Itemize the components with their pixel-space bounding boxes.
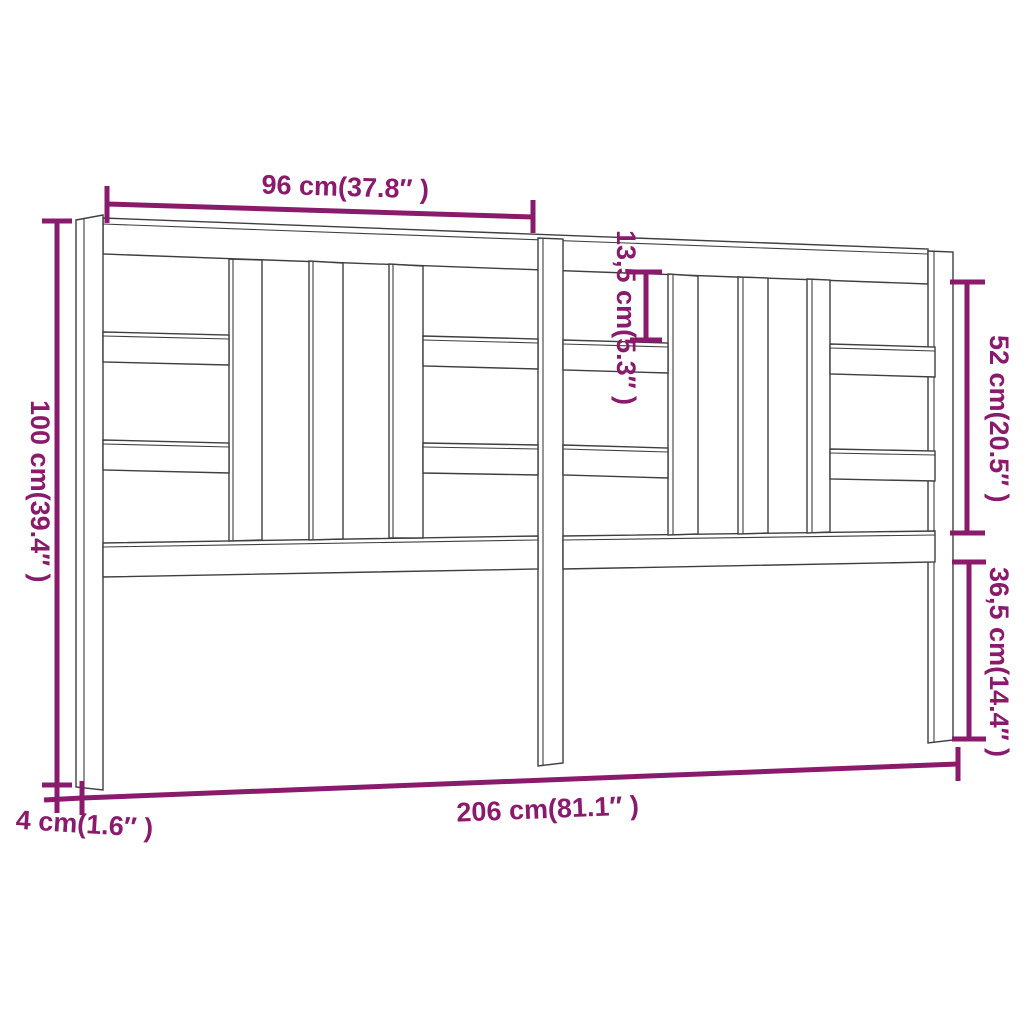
- top-rail: [103, 218, 928, 284]
- label-post-thickness: 4 cm(1.6″ ): [15, 805, 154, 843]
- right-post: [928, 251, 953, 743]
- dim-panel-opening-height: [950, 282, 985, 533]
- right-panel-vertical-slats: [668, 274, 830, 535]
- label-lower-post-height: 36,5 cm(14.4″ ): [984, 567, 1014, 757]
- headboard-line-art: [76, 215, 953, 790]
- label-upper-gap-height: 13,5 cm(5.3″ ): [611, 230, 641, 405]
- left-panel-vertical-slats: [229, 259, 423, 541]
- dim-lower-post-height: [952, 562, 986, 739]
- right-panel-bottom-rail: [563, 531, 935, 569]
- left-post: [76, 215, 103, 790]
- middle-post: [538, 238, 563, 766]
- label-panel-opening-height: 52 cm(20.5″ ): [984, 335, 1014, 503]
- left-panel-bottom-rail: [103, 536, 538, 577]
- headboard-dimension-diagram: 96 cm(37.8″ ) 13,5 cm(5.3″ ) 52 cm(20.5″…: [0, 0, 1024, 1024]
- right-panel-right-boards: [830, 344, 935, 481]
- label-top-section-width: 96 cm(37.8″ ): [261, 170, 429, 205]
- left-panel-left-boards: [103, 332, 229, 473]
- label-total-height: 100 cm(39.4″ ): [25, 400, 55, 583]
- label-total-width: 206 cm(81.1″ ): [456, 790, 640, 827]
- diagram-canvas: 96 cm(37.8″ ) 13,5 cm(5.3″ ) 52 cm(20.5″…: [0, 0, 1024, 1024]
- left-panel-right-boards: [423, 336, 538, 475]
